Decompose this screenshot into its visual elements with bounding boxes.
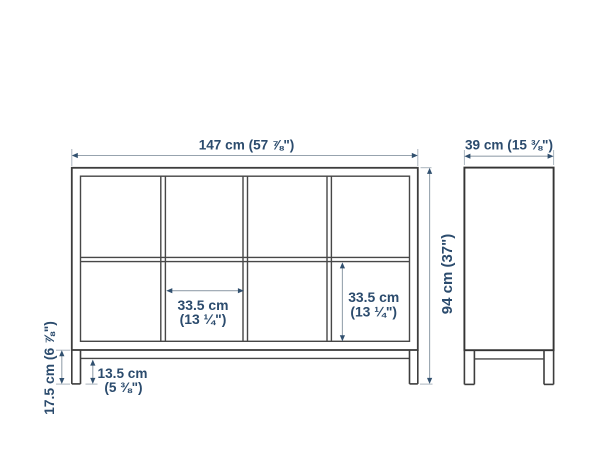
svg-text:(13 ¼"): (13 ¼") — [180, 311, 227, 327]
svg-text:39 cm (15 ⅜"): 39 cm (15 ⅜") — [465, 138, 553, 153]
svg-text:147 cm (57 ⅞"): 147 cm (57 ⅞") — [199, 137, 295, 152]
svg-text:(13 ¼"): (13 ¼") — [350, 303, 397, 319]
svg-text:13.5 cm: 13.5 cm — [98, 366, 148, 381]
svg-text:94 cm (37"): 94 cm (37") — [439, 234, 456, 315]
svg-text:17.5 cm (6 ⅞"): 17.5 cm (6 ⅞") — [41, 321, 57, 415]
svg-text:(5 ⅜"): (5 ⅜") — [104, 380, 142, 395]
